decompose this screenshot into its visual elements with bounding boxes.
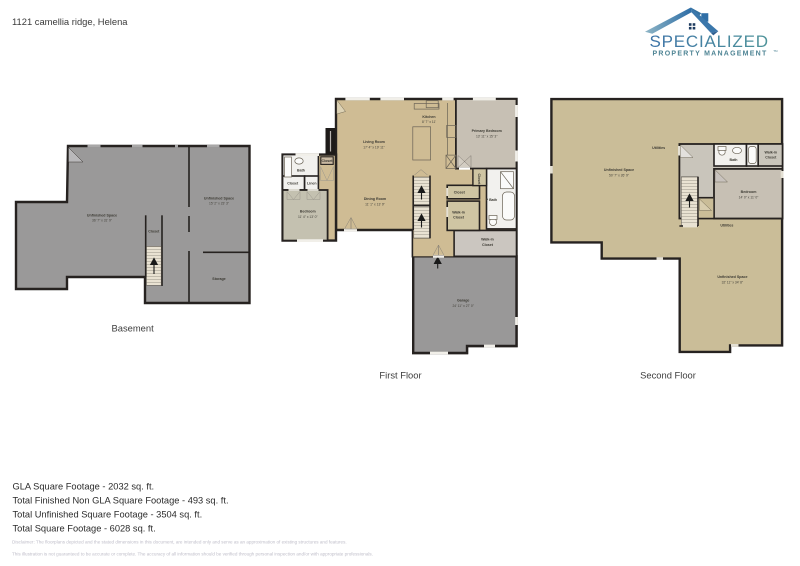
- svg-text:Utilities: Utilities: [720, 224, 733, 228]
- svg-text:First Floor: First Floor: [379, 370, 421, 381]
- svg-text:Total Unfinished Square Footag: Total Unfinished Square Footage - 3504 s…: [13, 510, 203, 520]
- svg-text:Kitchen: Kitchen: [422, 115, 435, 119]
- svg-text:Closet: Closet: [454, 191, 466, 195]
- svg-text:Walk-in: Walk-in: [764, 151, 777, 155]
- svg-text:Closet: Closet: [477, 174, 481, 186]
- svg-text:8' 7" x 11': 8' 7" x 11': [422, 120, 436, 124]
- svg-text:Unfinished Space: Unfinished Space: [717, 275, 747, 279]
- svg-text:13' 11" x 15' 3": 13' 11" x 15' 3": [476, 135, 498, 139]
- svg-text:Closet: Closet: [148, 230, 160, 234]
- svg-text:PROPERTY MANAGEMENT: PROPERTY MANAGEMENT: [653, 51, 768, 58]
- svg-text:Closet: Closet: [322, 159, 334, 163]
- svg-text:Primary Bedroom: Primary Bedroom: [472, 129, 502, 133]
- svg-text:Disclaimer: The floorplans dep: Disclaimer: The floorplans depicted and …: [12, 540, 347, 545]
- svg-text:Closet: Closet: [453, 216, 465, 220]
- svg-text:Linen: Linen: [307, 182, 317, 186]
- svg-text:Dining Room: Dining Room: [364, 197, 386, 201]
- svg-text:1121 camellia ridge, Helena: 1121 camellia ridge, Helena: [12, 16, 128, 27]
- svg-text:Closet: Closet: [765, 156, 777, 160]
- svg-text:11' 4" x 13' 0": 11' 4" x 13' 0": [298, 215, 318, 219]
- svg-text:Closet: Closet: [287, 182, 299, 186]
- svg-text:Living Room: Living Room: [363, 140, 385, 144]
- svg-text:36' 7" x 31' 9": 36' 7" x 31' 9": [92, 219, 113, 223]
- svg-text:Bedroom: Bedroom: [300, 210, 316, 214]
- svg-text:Second Floor: Second Floor: [640, 369, 696, 380]
- svg-text:Storage: Storage: [212, 277, 225, 281]
- svg-text:Unfinished Space: Unfinished Space: [204, 197, 234, 201]
- svg-text:Basement: Basement: [111, 323, 154, 334]
- svg-text:Utilities: Utilities: [652, 146, 665, 150]
- svg-text:Closet: Closet: [482, 243, 494, 247]
- svg-text:Bath: Bath: [730, 158, 738, 162]
- svg-text:Unfinished Space: Unfinished Space: [604, 168, 634, 172]
- svg-text:14' 0" x 11' 0": 14' 0" x 11' 0": [739, 196, 759, 200]
- svg-text:Total Square Footage - 6028 sq: Total Square Footage - 6028 sq. ft.: [13, 524, 156, 534]
- svg-text:Bedroom: Bedroom: [741, 190, 757, 194]
- svg-text:This illustration is not guara: This illustration is not guaranteed to b…: [12, 552, 373, 557]
- svg-text:TM: TM: [773, 49, 778, 53]
- svg-text:Walk-in: Walk-in: [452, 211, 465, 215]
- svg-text:24' 11" x 27' 0": 24' 11" x 27' 0": [452, 304, 474, 308]
- svg-text:SPECIALIZED: SPECIALIZED: [650, 32, 769, 51]
- svg-text:32' 11" x 34' 8": 32' 11" x 34' 8": [722, 281, 744, 285]
- svg-text:Garage: Garage: [457, 299, 469, 303]
- svg-text:Unfinished Space: Unfinished Space: [87, 214, 117, 218]
- svg-text:50' 7" x 26' 9": 50' 7" x 26' 9": [609, 174, 630, 178]
- svg-text:15' 2" x 23' 3": 15' 2" x 23' 3": [209, 202, 230, 206]
- svg-text:P Bath: P Bath: [486, 198, 497, 202]
- svg-text:Bath: Bath: [297, 169, 305, 173]
- svg-text:11' 1" x 13' 9": 11' 1" x 13' 9": [365, 203, 385, 207]
- svg-text:Total Finished Non GLA Square: Total Finished Non GLA Square Footage - …: [13, 496, 229, 506]
- svg-text:Walk-in: Walk-in: [481, 238, 494, 242]
- svg-text:17' 4" x 19' 11": 17' 4" x 19' 11": [363, 146, 385, 150]
- svg-text:GLA Square Footage - 2032 sq.: GLA Square Footage - 2032 sq. ft.: [13, 482, 155, 492]
